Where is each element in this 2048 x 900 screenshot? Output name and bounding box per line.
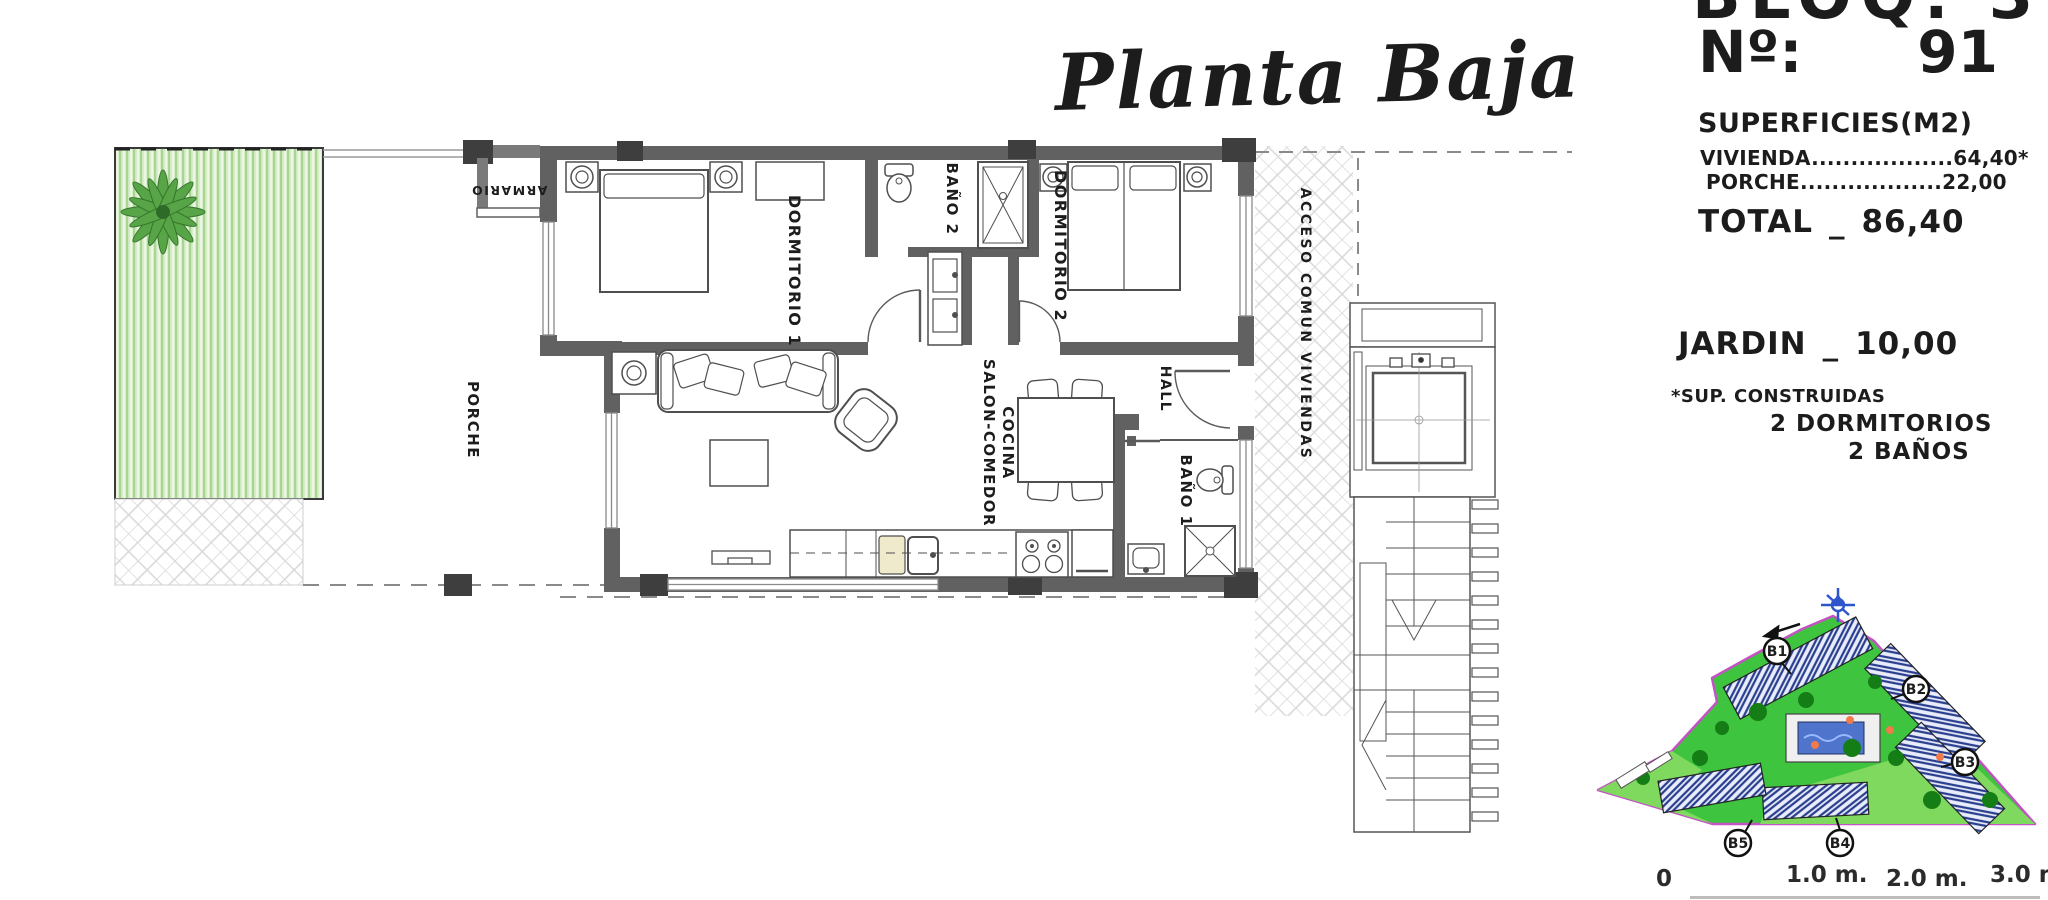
palm-tree-icon: [121, 170, 205, 254]
paved-hatch-area: [115, 499, 303, 585]
label-acceso: ACCESO COMUN VIVIENDAS: [1297, 188, 1313, 461]
label-bano1: BAÑO 1: [1177, 454, 1196, 527]
dining-set: [1018, 379, 1114, 502]
elevator-core: [1350, 303, 1495, 497]
site-label-b2: B2: [1906, 682, 1926, 698]
scale-strip: [1690, 896, 2040, 899]
scale-tick-1: 1.0 m.: [1786, 862, 1867, 888]
total-separator: _: [1829, 204, 1846, 240]
feature-bathrooms: 2 BAÑOS: [1848, 439, 1970, 465]
label-salon-line1: SALON-COMEDOR: [980, 359, 998, 527]
surfaces-title: SUPERFICIES(M2): [1698, 108, 1972, 139]
feature-bedrooms: 2 DORMITORIOS: [1770, 411, 1992, 437]
scale-tick-3: 3.0 m.: [1990, 862, 2048, 888]
jardin-label: JARDIN: [1678, 326, 1807, 362]
toilet-icon: [885, 164, 913, 202]
total-value: 86,40: [1861, 204, 1964, 240]
floorplan-sheet: PORCHE ARMARIO DORMITORIO 1 BAÑO 2 DORMI…: [0, 0, 2048, 900]
footnote: *SUP. CONSTRUIDAS: [1671, 386, 1885, 407]
label-dormitorio2: DORMITORIO 2: [1051, 170, 1070, 322]
label-dormitorio1: DORMITORIO 1: [785, 195, 804, 347]
unit-number-value: 91: [1917, 18, 1998, 86]
site-plan: B1 B2 B3 B4 B5: [1598, 588, 2035, 856]
scale-tick-2: 2.0 m.: [1886, 866, 1967, 892]
dot-leader: ..................: [1800, 170, 1942, 194]
site-pool: [1786, 714, 1880, 762]
label-armario: ARMARIO: [471, 183, 548, 198]
total-row: TOTAL_86,40: [1698, 204, 1965, 240]
surface-value: 64,40*: [1953, 146, 2029, 170]
site-label-b3: B3: [1955, 755, 1975, 771]
site-label-b1: B1: [1767, 644, 1787, 660]
shower-icon: [1185, 526, 1235, 576]
jardin-separator: _: [1823, 326, 1840, 362]
surface-label: VIVIENDA: [1700, 146, 1811, 170]
surface-row-vivienda: VIVIENDA..................64,40*: [1700, 146, 2029, 170]
label-bano2: BAÑO 2: [943, 162, 962, 235]
page-title: Planta Baja: [1054, 26, 1516, 129]
label-hall: HALL: [1157, 366, 1173, 412]
surface-label: PORCHE: [1706, 170, 1800, 194]
unit-number-label: Nº:: [1698, 18, 1802, 86]
total-label: TOTAL: [1698, 204, 1813, 240]
toilet-icon: [1197, 466, 1233, 494]
garden-area: [115, 148, 323, 499]
furniture: [566, 162, 1235, 577]
label-salon-line2: COCINA: [999, 406, 1017, 480]
jardin-value: 10,00: [1855, 326, 1958, 362]
stair-rungs: [1472, 500, 1498, 821]
label-porche: PORCHE: [464, 381, 482, 459]
unit-number-row: Nº: 91: [1698, 18, 1998, 86]
site-label-b4: B4: [1830, 836, 1851, 852]
jardin-row: JARDIN_10,00: [1678, 326, 1958, 362]
surface-row-porche: PORCHE..................22,00: [1706, 170, 2007, 194]
kitchen-counter: [790, 530, 1113, 577]
dot-leader: ..................: [1811, 146, 1953, 170]
site-label-b5: B5: [1728, 836, 1748, 852]
compass-icon: [1821, 588, 1855, 622]
staircase: [1354, 497, 1498, 832]
scale-tick-0: 0: [1656, 866, 1672, 892]
surface-value: 22,00: [1942, 170, 2007, 194]
shower-icon: [978, 162, 1028, 248]
